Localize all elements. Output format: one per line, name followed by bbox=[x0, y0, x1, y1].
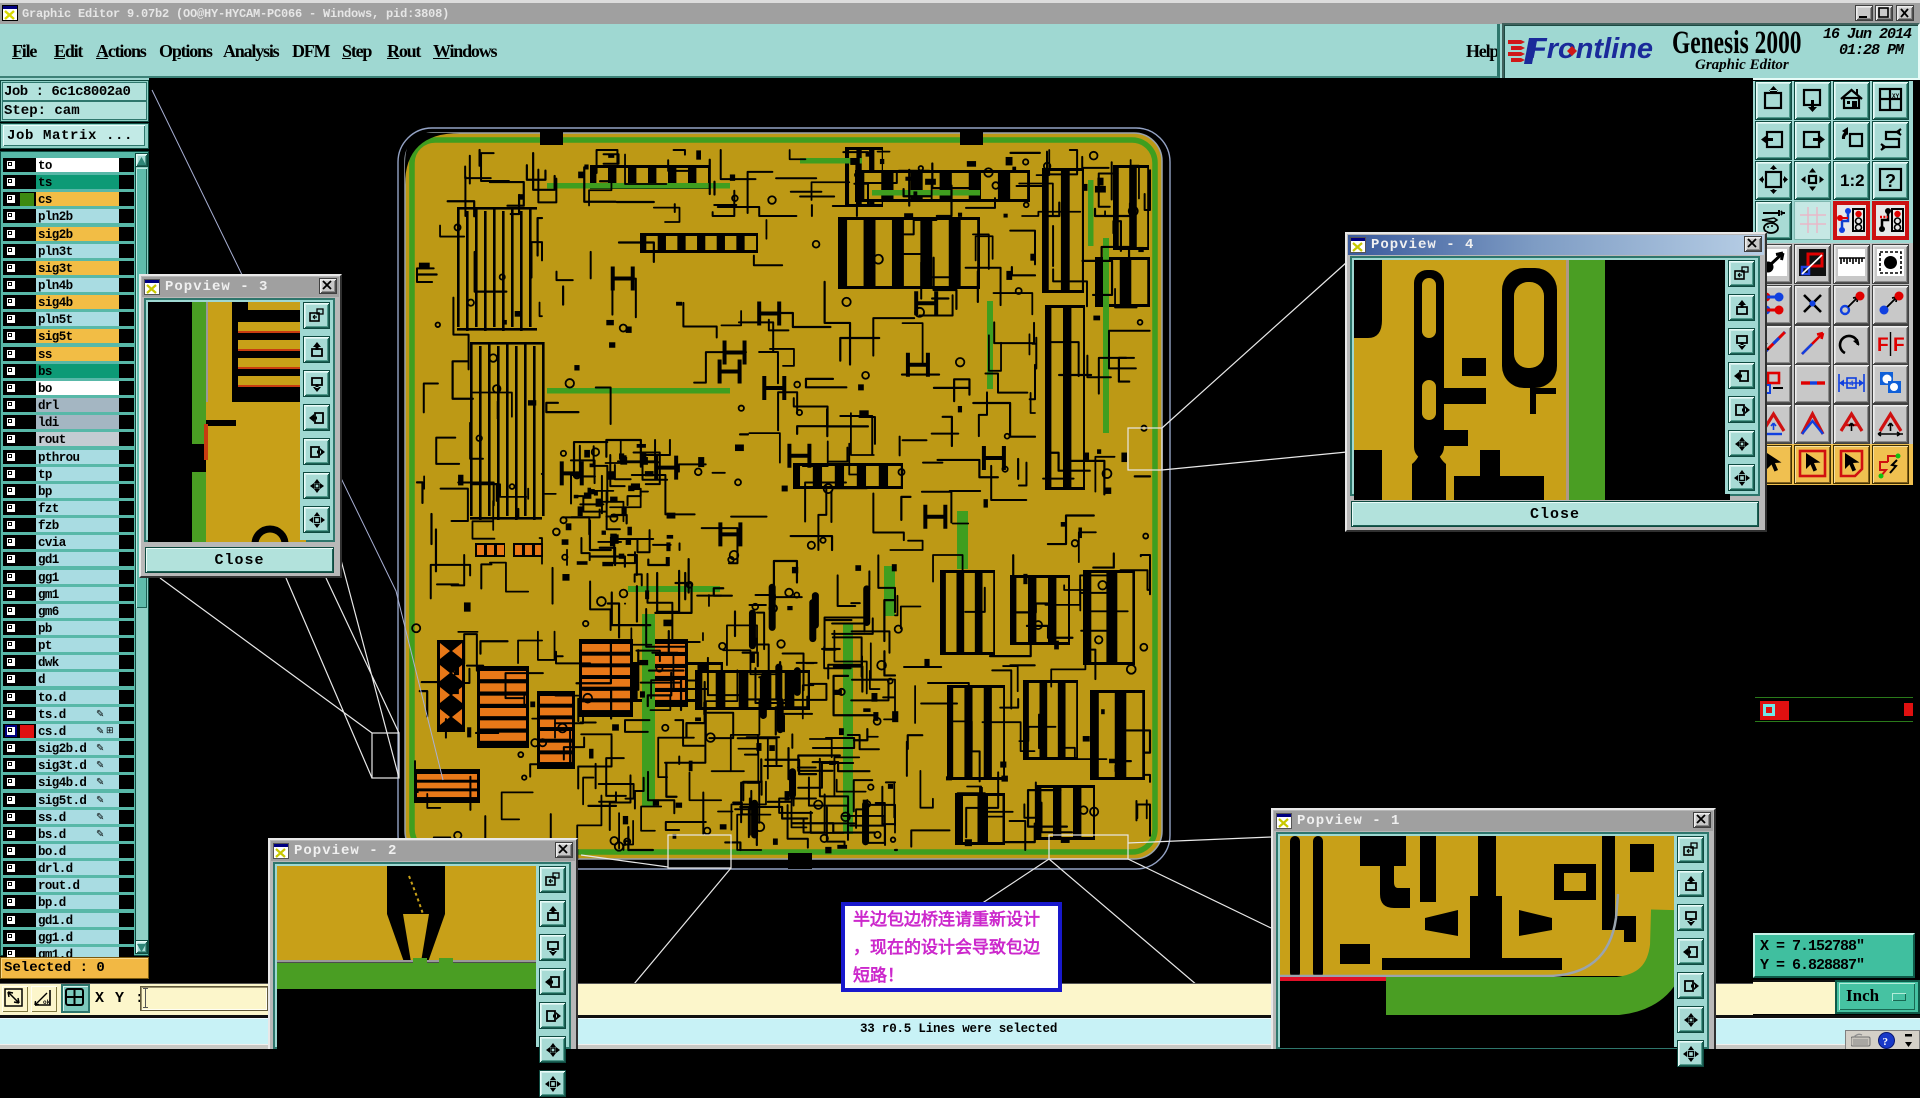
svg-text:1:2: 1:2 bbox=[1840, 171, 1865, 190]
svg-text:4: 4 bbox=[1849, 380, 1854, 389]
svg-text:?: ? bbox=[1885, 171, 1896, 191]
svg-text:F: F bbox=[1877, 335, 1889, 356]
svg-text:ok: ok bbox=[43, 999, 51, 1006]
svg-text:XY: XY bbox=[1892, 93, 1900, 100]
svg-text:?: ? bbox=[1883, 1036, 1889, 1048]
svg-text:F: F bbox=[1893, 335, 1905, 356]
